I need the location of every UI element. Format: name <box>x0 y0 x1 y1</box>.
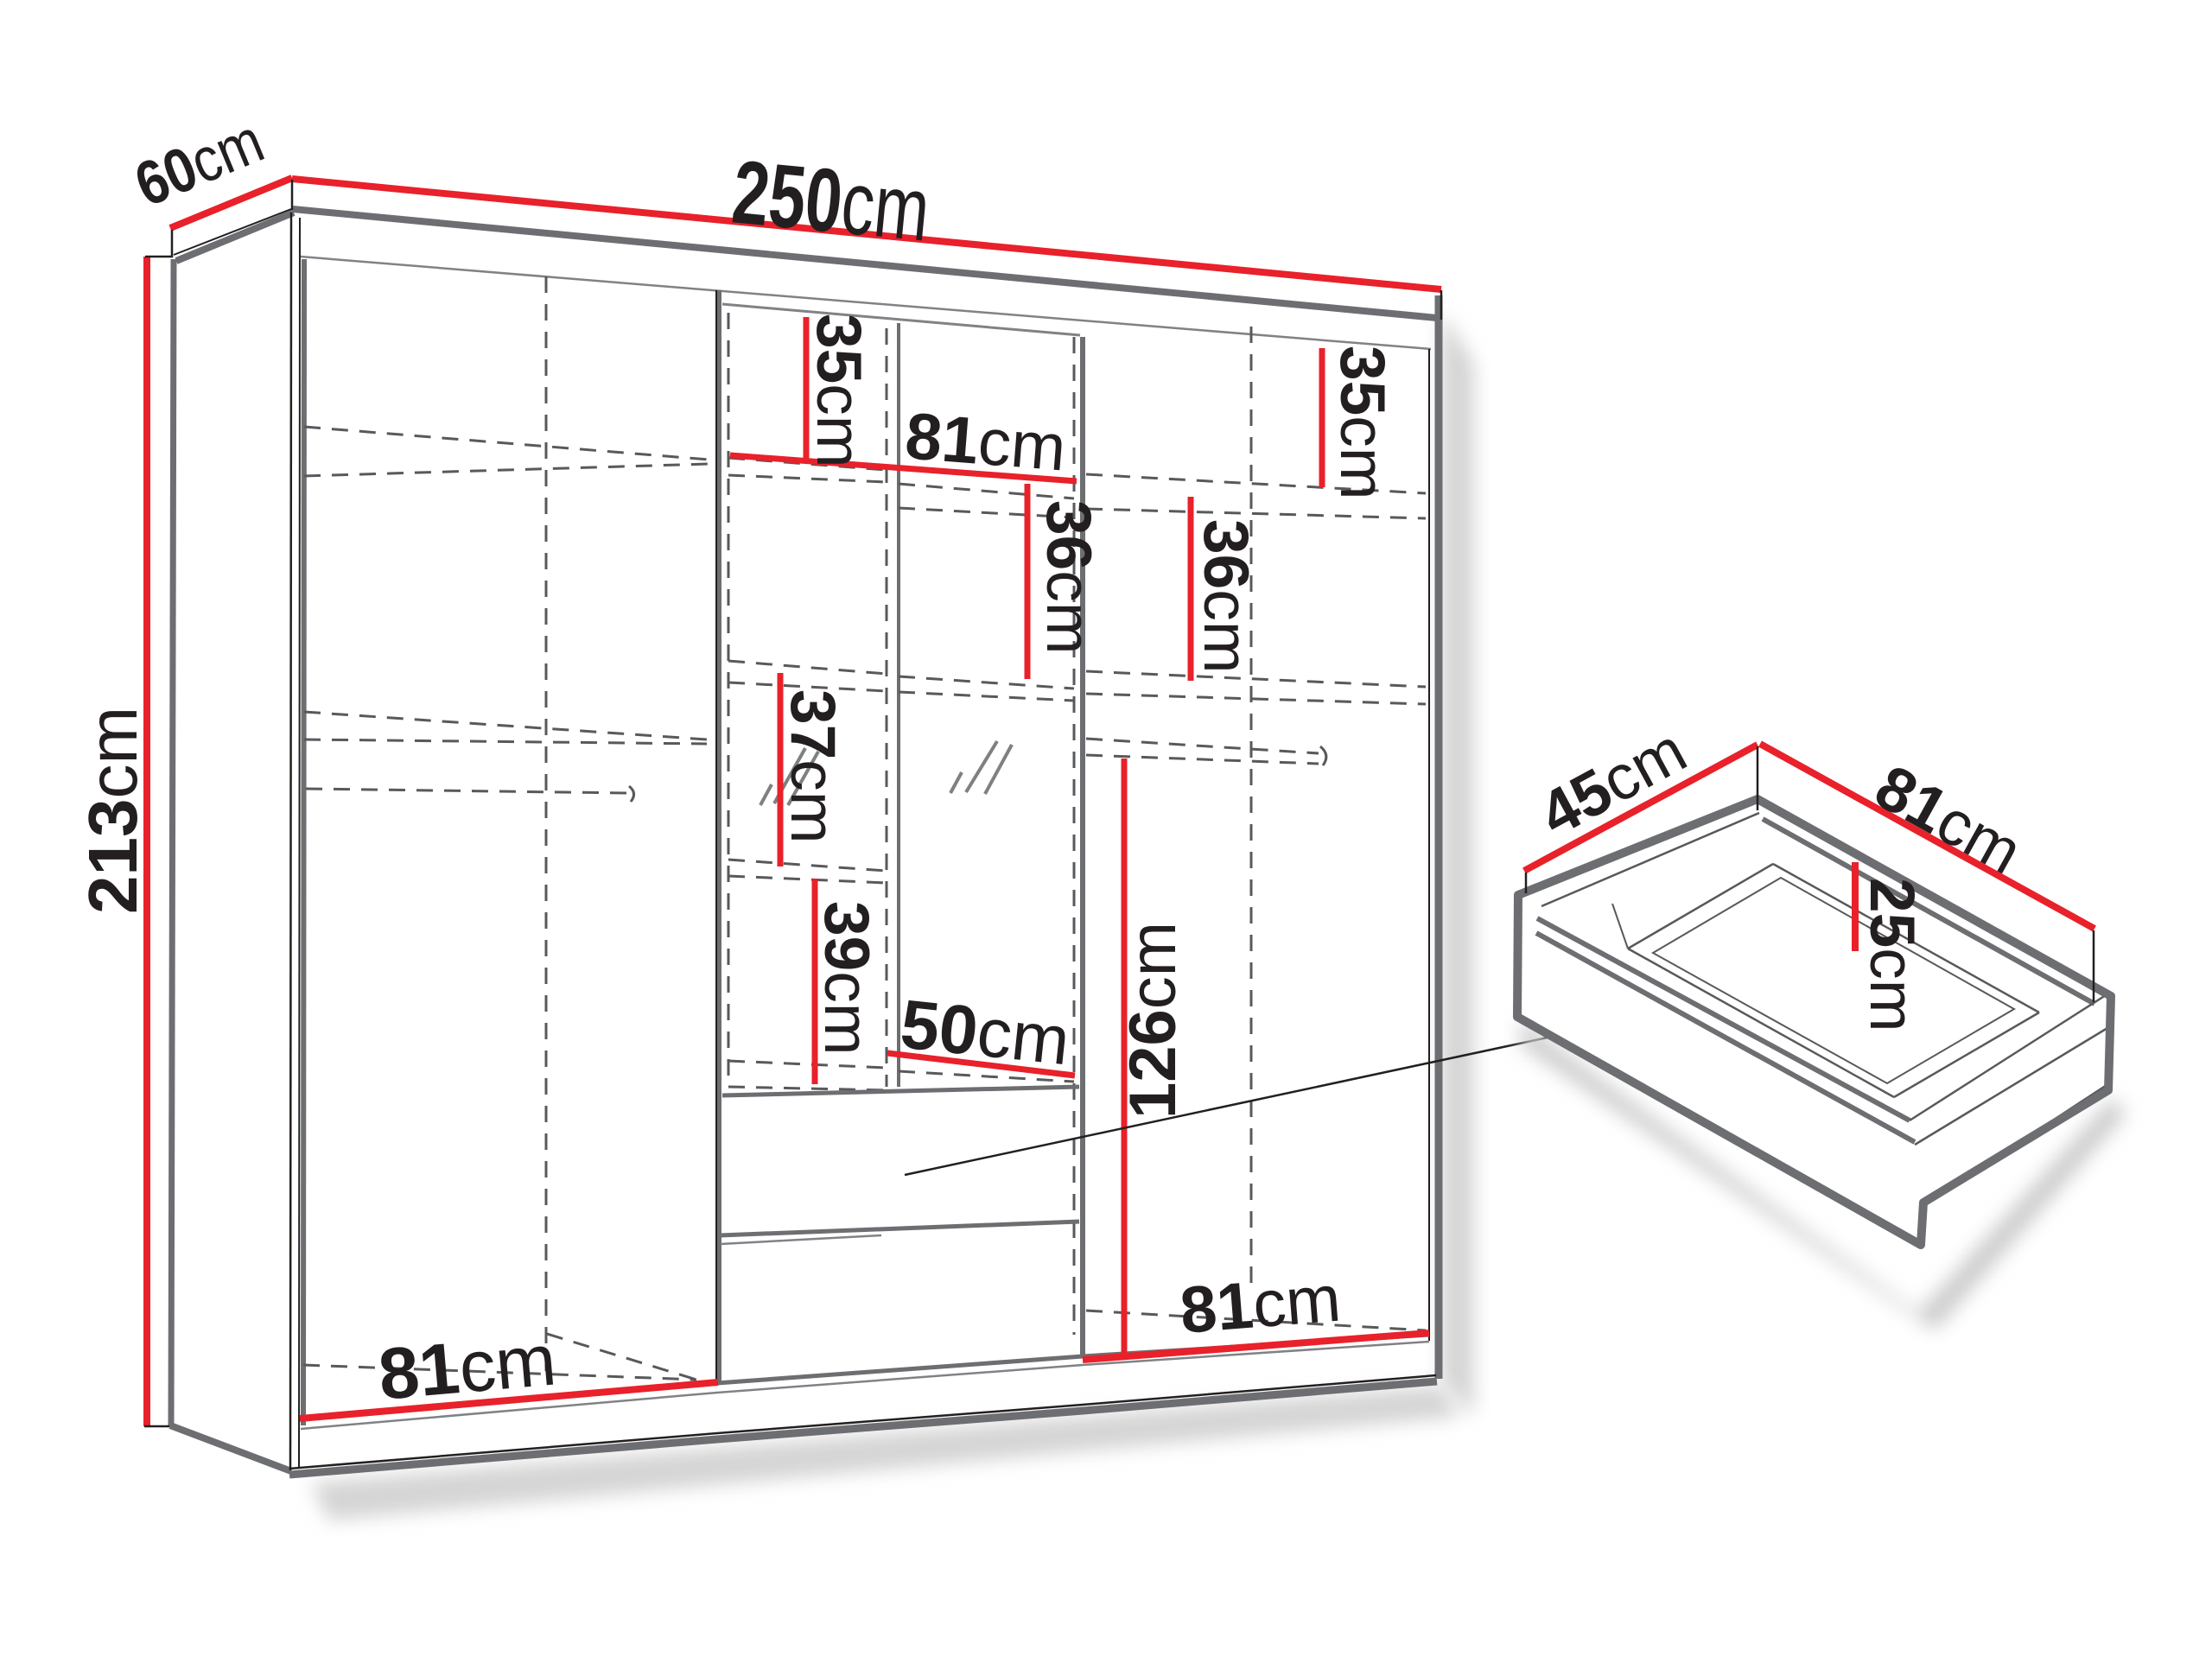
svg-text:250cm: 250cm <box>728 143 934 261</box>
svg-text:25cm: 25cm <box>1857 878 1927 1032</box>
svg-text:35cm: 35cm <box>1327 346 1397 500</box>
svg-text:35cm: 35cm <box>804 314 874 468</box>
svg-text:36cm: 36cm <box>1033 500 1103 655</box>
svg-text:81cm: 81cm <box>903 399 1069 485</box>
svg-text:36cm: 36cm <box>1191 519 1261 674</box>
svg-text:81cm: 81cm <box>1178 1262 1344 1348</box>
svg-text:37cm: 37cm <box>778 689 848 844</box>
svg-text:39cm: 39cm <box>811 901 881 1056</box>
svg-text:81cm: 81cm <box>375 1318 559 1415</box>
svg-text:126cm: 126cm <box>1116 922 1190 1119</box>
svg-text:213cm: 213cm <box>74 707 151 914</box>
